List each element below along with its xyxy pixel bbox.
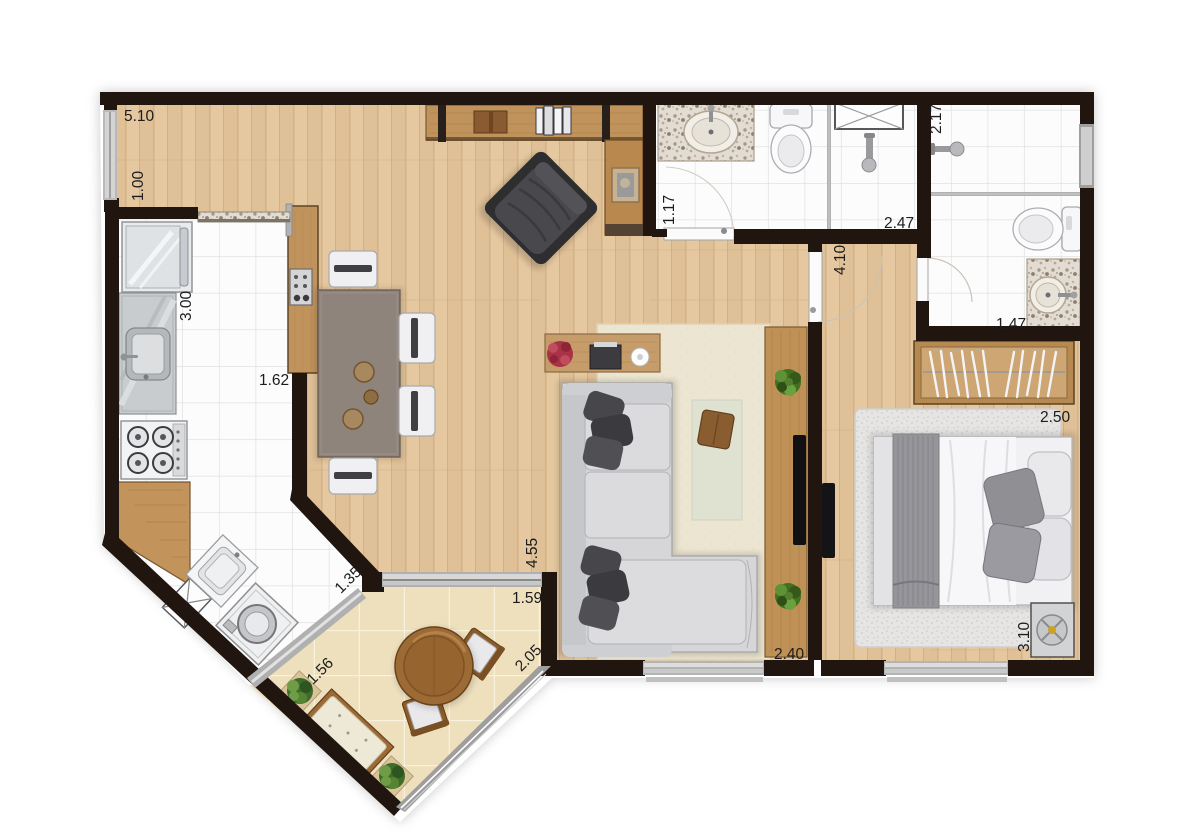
svg-text:4.10: 4.10 (832, 244, 849, 275)
svg-text:2.47: 2.47 (884, 215, 914, 232)
svg-text:4.55: 4.55 (524, 538, 541, 568)
svg-text:2.50: 2.50 (1040, 409, 1071, 426)
svg-text:1.17: 1.17 (661, 195, 678, 225)
svg-text:2.40: 2.40 (774, 646, 805, 663)
svg-text:1.59: 1.59 (512, 590, 542, 607)
svg-text:1.00: 1.00 (130, 170, 147, 201)
svg-text:3.10: 3.10 (1016, 621, 1033, 652)
svg-text:1.62: 1.62 (259, 372, 289, 389)
svg-text:3.00: 3.00 (178, 290, 195, 321)
svg-text:5.10: 5.10 (124, 108, 155, 125)
svg-text:2.17: 2.17 (928, 104, 945, 134)
svg-text:1.47: 1.47 (996, 316, 1026, 333)
